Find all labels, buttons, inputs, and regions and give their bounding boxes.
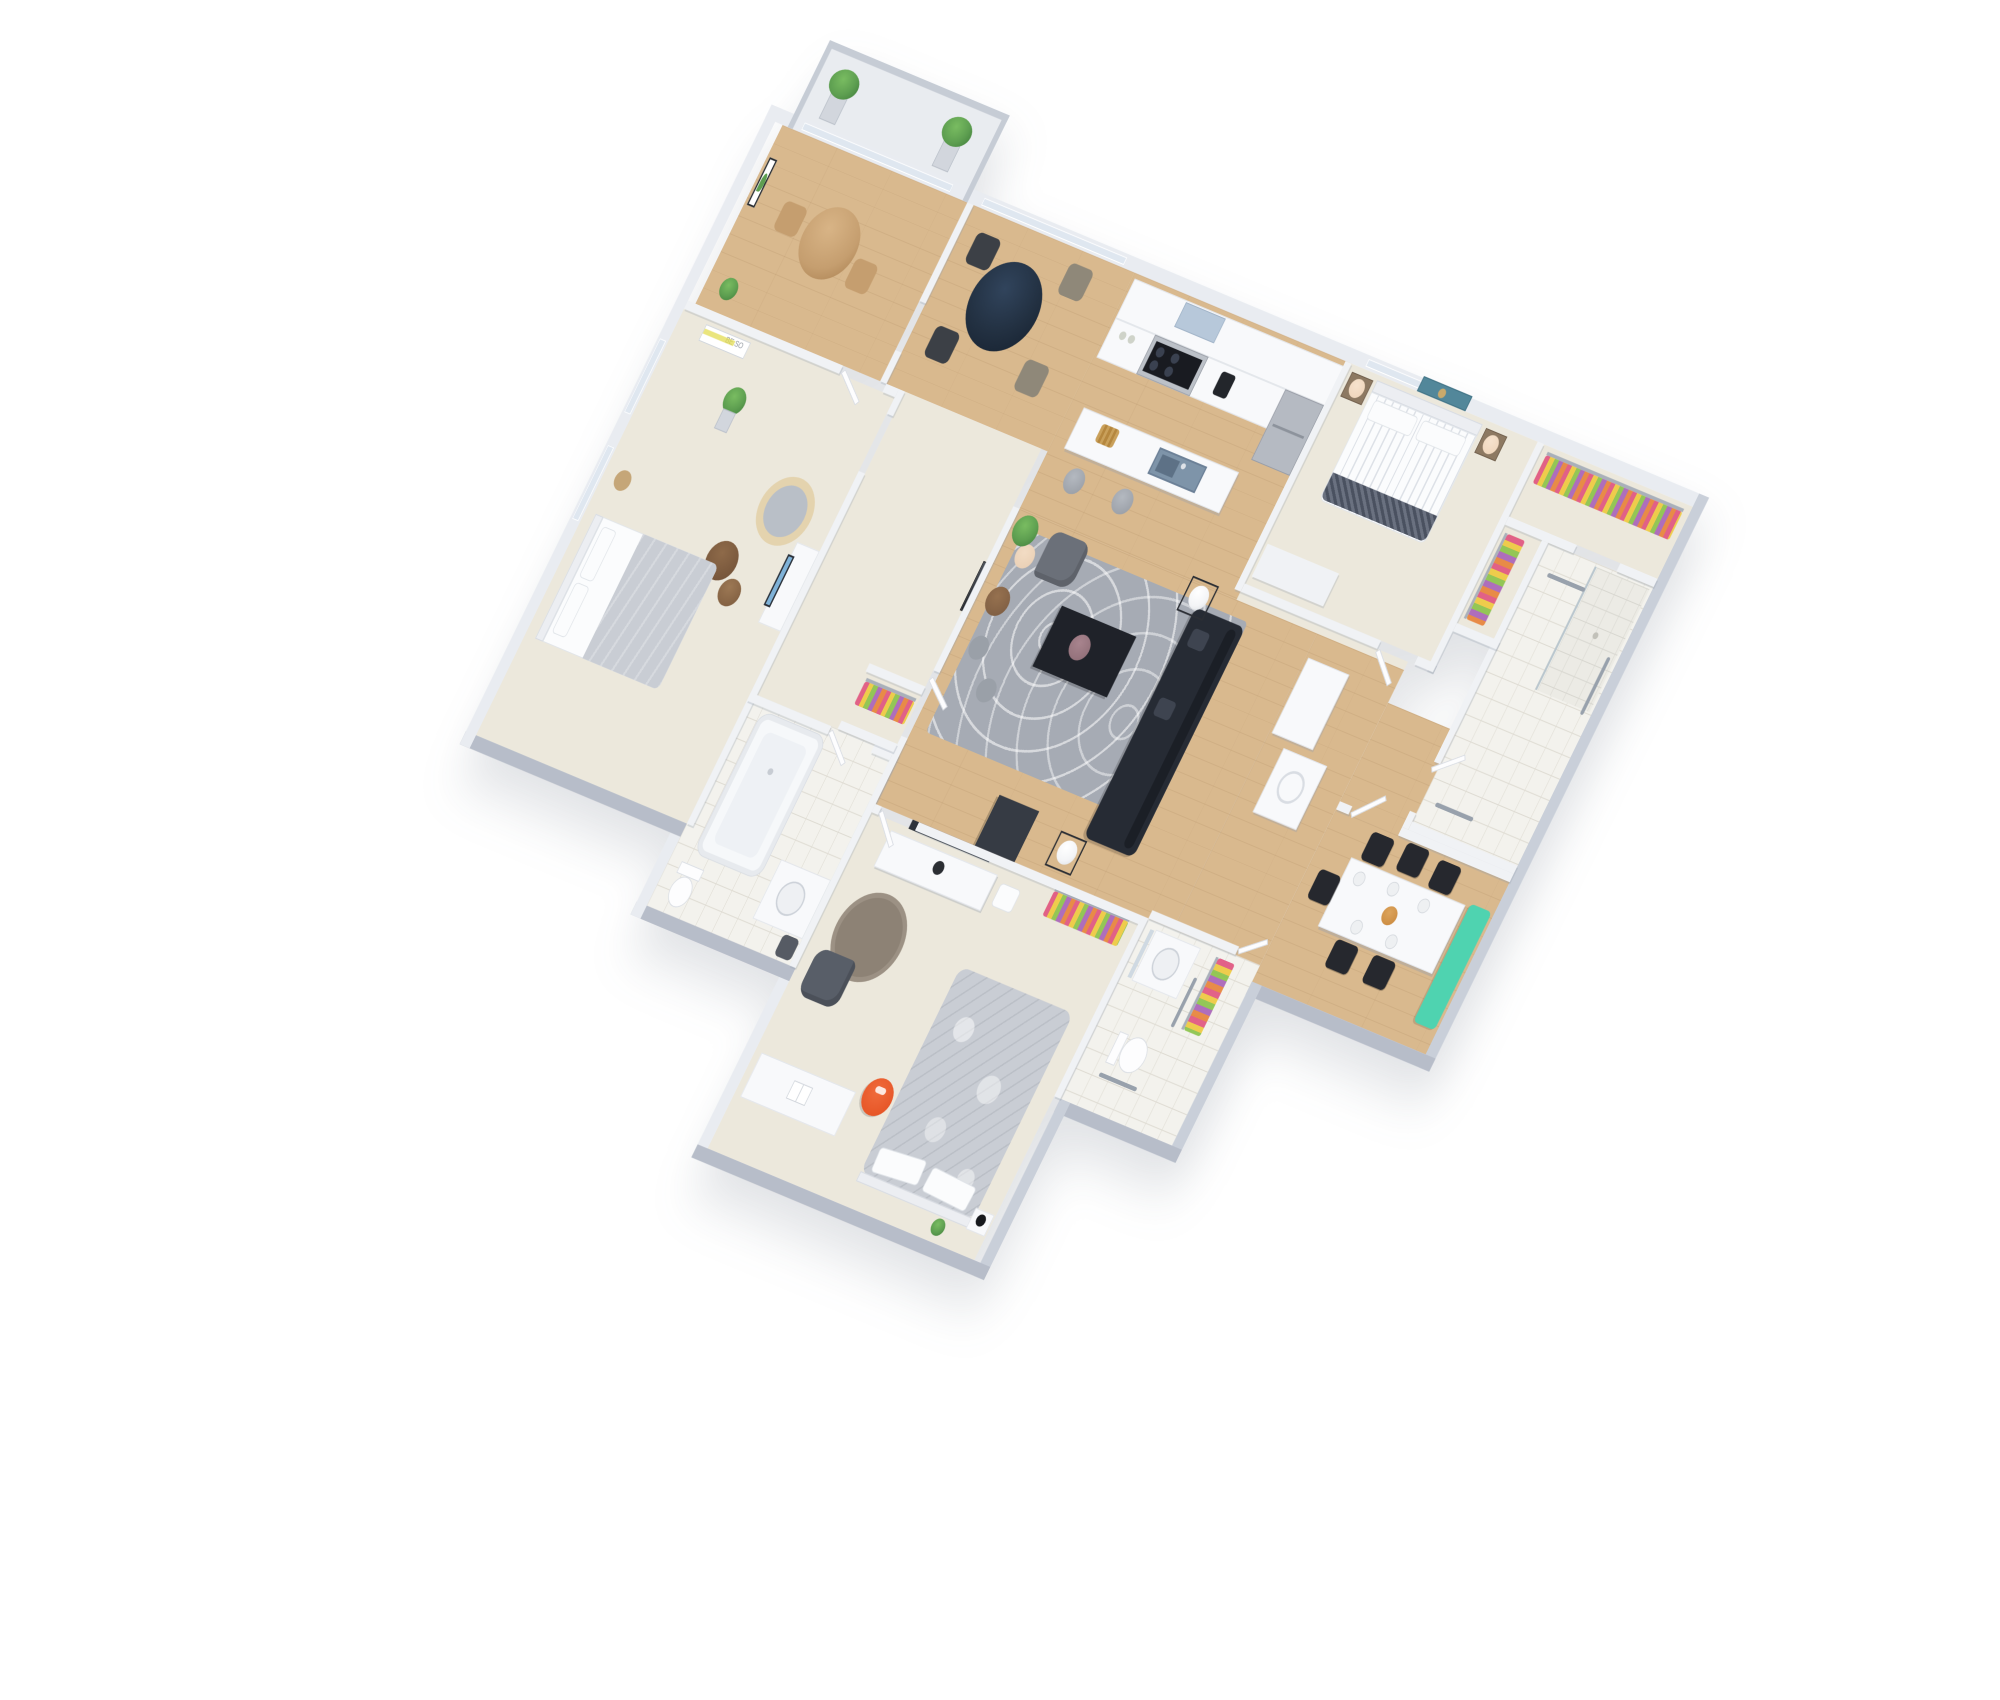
apartment-3d-plan: BE SO: [340, 30, 1738, 1399]
floor-plan-canvas: BE SO: [0, 0, 2000, 1700]
